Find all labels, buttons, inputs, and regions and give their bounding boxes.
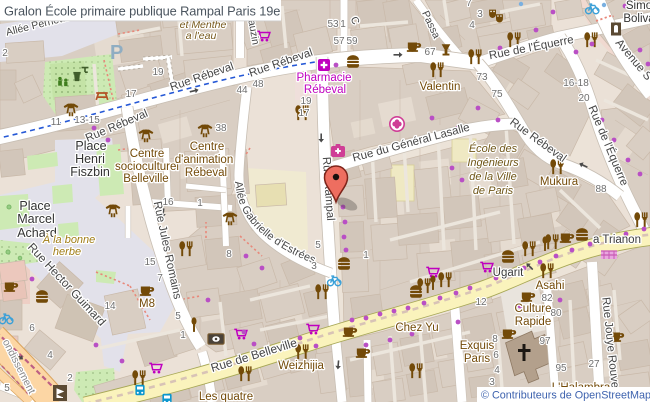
svg-text:8: 8: [492, 334, 498, 345]
svg-text:Valentin: Valentin: [420, 81, 461, 93]
svg-text:6: 6: [29, 323, 35, 334]
svg-text:5: 5: [4, 383, 10, 394]
svg-text:Belleville: Belleville: [123, 173, 168, 185]
svg-text:5: 5: [175, 311, 181, 322]
svg-text:herbe: herbe: [53, 246, 81, 258]
svg-text:© Contributeurs de OpenStreetM: © Contributeurs de OpenStreetMap: [481, 390, 650, 402]
svg-text:Culture: Culture: [514, 303, 551, 315]
svg-text:19: 19: [300, 96, 312, 107]
svg-text:4: 4: [47, 350, 53, 361]
svg-text:1: 1: [197, 198, 203, 209]
svg-text:57: 57: [333, 36, 345, 47]
svg-text:1: 1: [340, 19, 346, 30]
svg-text:M8: M8: [139, 298, 155, 310]
svg-text:Fiszbin: Fiszbin: [70, 165, 110, 179]
svg-text:Henri: Henri: [75, 152, 105, 166]
svg-text:80: 80: [550, 308, 562, 319]
svg-text:97: 97: [539, 336, 551, 347]
svg-text:67: 67: [424, 47, 436, 58]
svg-text:8: 8: [226, 249, 232, 260]
svg-text:4: 4: [469, 20, 475, 31]
svg-text:Place: Place: [75, 139, 106, 153]
svg-text:2: 2: [67, 373, 73, 384]
svg-text:Exquis: Exquis: [460, 340, 495, 352]
svg-text:Rébeval: Rébeval: [304, 84, 346, 96]
svg-text:a Trianon: a Trianon: [593, 234, 641, 246]
svg-text:Place: Place: [19, 199, 50, 213]
svg-text:P: P: [110, 42, 123, 64]
svg-text:Les quatre: Les quatre: [199, 391, 253, 402]
svg-text:13-15: 13-15: [74, 115, 100, 126]
svg-text:48: 48: [252, 79, 264, 90]
svg-text:19: 19: [152, 67, 164, 78]
svg-text:16-18: 16-18: [563, 78, 589, 89]
svg-text:Rapide: Rapide: [515, 316, 551, 328]
svg-text:Centre: Centre: [190, 141, 225, 153]
svg-text:Simo: Simo: [626, 0, 650, 12]
svg-text:a l'eau: a l'eau: [186, 30, 217, 42]
svg-text:1: 1: [363, 250, 369, 261]
svg-text:de la Ville: de la Ville: [469, 171, 517, 183]
svg-text:À la bonne: À la bonne: [42, 233, 96, 246]
svg-text:Ugarit: Ugarit: [493, 267, 524, 279]
svg-text:Mukura: Mukura: [540, 176, 579, 188]
svg-text:12: 12: [475, 297, 487, 308]
svg-text:3: 3: [477, 9, 483, 20]
svg-text:de Paris: de Paris: [473, 185, 514, 197]
svg-text:Marcel: Marcel: [17, 212, 55, 226]
svg-text:1: 1: [180, 330, 186, 341]
svg-text:15: 15: [144, 257, 156, 268]
svg-text:Rébeval: Rébeval: [185, 167, 227, 179]
svg-text:16: 16: [162, 197, 174, 208]
svg-text:88: 88: [595, 184, 607, 195]
svg-text:53: 53: [327, 19, 339, 30]
svg-text:3: 3: [489, 377, 495, 388]
svg-text:Weizhijia: Weizhijia: [278, 360, 324, 372]
svg-text:20: 20: [578, 93, 590, 104]
svg-text:Chez Yu: Chez Yu: [395, 322, 438, 334]
svg-text:Paris: Paris: [464, 353, 490, 365]
svg-text:75: 75: [491, 89, 503, 100]
svg-text:73: 73: [476, 72, 488, 83]
svg-text:7: 7: [466, 0, 472, 9]
svg-text:Centre: Centre: [130, 148, 165, 160]
svg-text:11: 11: [51, 117, 62, 128]
svg-text:14: 14: [104, 301, 116, 312]
svg-text:6: 6: [493, 350, 499, 361]
svg-text:82: 82: [541, 293, 553, 304]
svg-text:38: 38: [215, 123, 227, 134]
svg-text:27: 27: [588, 359, 600, 370]
svg-text:17: 17: [125, 89, 137, 100]
svg-text:d'animation: d'animation: [175, 154, 233, 166]
svg-text:59: 59: [346, 36, 358, 47]
svg-text:Asahi: Asahi: [536, 280, 565, 292]
svg-text:3: 3: [311, 261, 317, 272]
svg-text:4: 4: [494, 365, 500, 376]
svg-text:2: 2: [2, 48, 8, 59]
svg-text:95: 95: [555, 363, 567, 374]
svg-text:7: 7: [157, 273, 163, 284]
svg-text:17: 17: [298, 108, 310, 119]
svg-text:École des: École des: [469, 142, 518, 155]
svg-text:Ingénieurs: Ingénieurs: [467, 157, 519, 169]
svg-text:Boliva: Boliva: [623, 13, 650, 25]
svg-text:Gralon École primaire publique: Gralon École primaire publique Rampal Pa…: [4, 4, 280, 19]
svg-text:socioculturel: socioculturel: [115, 161, 179, 173]
svg-text:5: 5: [315, 240, 321, 251]
svg-text:Pharmacie: Pharmacie: [297, 72, 352, 84]
svg-text:44: 44: [236, 85, 248, 96]
